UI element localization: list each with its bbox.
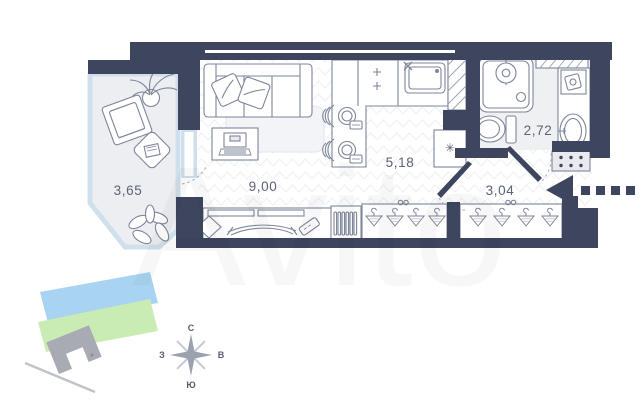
shower [479, 57, 533, 112]
building-marker [91, 354, 94, 357]
compass-north-label: С [188, 323, 195, 333]
doormat [552, 151, 590, 171]
wall-shaft-block [443, 110, 480, 130]
kitchen-sink-icon [404, 62, 445, 93]
washing-machine-icon [561, 70, 586, 94]
compass-south-label: Ю [186, 380, 195, 390]
vent-shaft [448, 55, 466, 110]
bathroom-area-label: 2,72 [524, 123, 553, 138]
compass-east-label: В [218, 350, 225, 360]
sofa [204, 64, 312, 117]
floor-plan-drawing: ✳ 3,65 9,00 5,18 2,72 3,04 С В Ю З A [0, 0, 640, 416]
entrance-path-dashes [581, 186, 635, 195]
wall-balcony-divider-upper [178, 42, 200, 130]
window-line [205, 50, 455, 53]
floor-plan-page: ✳ 3,65 9,00 5,18 2,72 3,04 С В Ю З A [0, 0, 640, 416]
compass-star [170, 334, 212, 376]
wall-bathroom-bottom-right [552, 141, 590, 152]
wall-balcony-top [88, 60, 180, 74]
watermark: Avito [133, 132, 508, 322]
compass-west-label: З [159, 350, 165, 360]
compass-rose: С В Ю З [159, 323, 225, 390]
wall-right [590, 42, 610, 158]
